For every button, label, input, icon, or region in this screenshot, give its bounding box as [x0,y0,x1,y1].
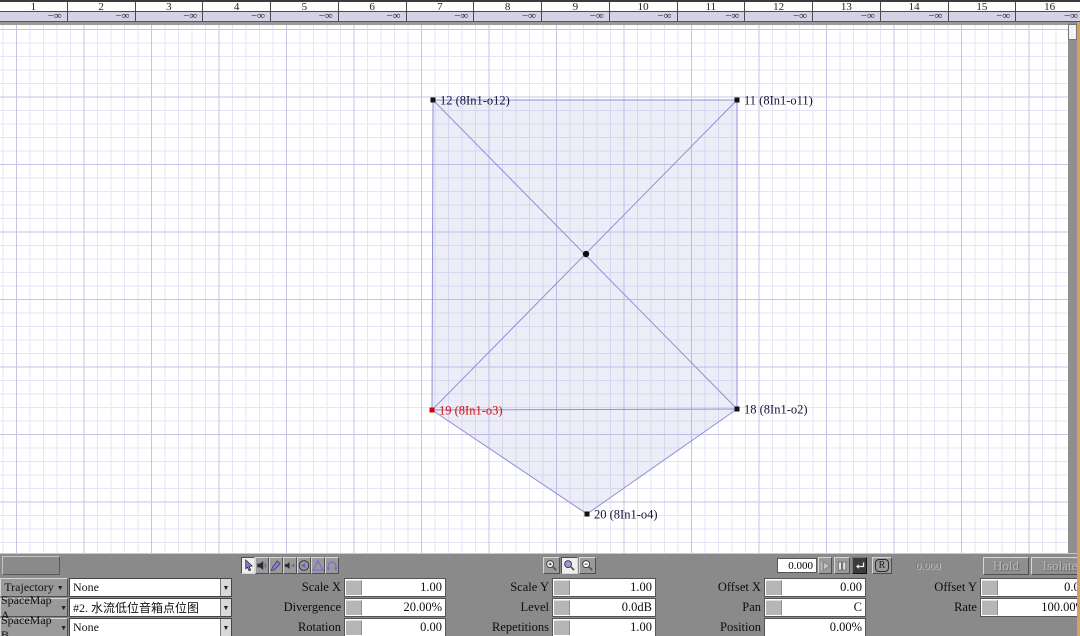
cursor-tool-button[interactable] [241,557,255,574]
param-scale-x-label: Scale X [232,578,344,597]
status-box [2,556,60,575]
spacemap-a-value: #2. 水流低位音箱点位图 [70,599,220,616]
channel-cell: 7−∞ [407,2,475,21]
speaker-solo-tool-button[interactable] [297,557,311,574]
slider-handle[interactable] [346,580,362,595]
zoom-fit-icon [563,559,576,572]
trajectory-select[interactable]: None▼ [69,578,232,597]
slider-handle[interactable] [346,600,362,615]
control-panel: Trajectory▼None▼SpaceMap A▼#2. 水流低位音箱点位图… [0,577,1080,636]
chevron-down-icon: ▼ [60,624,67,632]
slider-handle[interactable] [766,580,782,595]
param-scale-y-field[interactable]: 1.00 [552,578,656,597]
channel-meter-bar: 1−∞2−∞3−∞4−∞5−∞6−∞7−∞8−∞9−∞10−∞11−∞12−∞1… [0,0,1080,22]
channel-cell: 5−∞ [271,2,339,21]
param-offset-y-field[interactable]: 0.00 [980,578,1080,597]
speaker-pan-tool-icon [284,559,296,572]
spacemap-b-menu-button[interactable]: SpaceMap B▼ [0,618,68,636]
channel-cell: 15−∞ [949,2,1017,21]
spacemap-b-label: SpaceMap B [1,613,57,636]
slider-handle[interactable] [982,580,998,595]
param-offset-x-field[interactable]: 0.00 [764,578,866,597]
param-position-label: Position [656,618,764,636]
slider-handle[interactable] [346,620,362,635]
trajectory-value: None [70,580,220,595]
speaker-tool-icon [256,559,268,572]
param-offset-x-value: 0.00 [840,580,862,594]
param-divergence-field[interactable]: 20.00% [344,598,446,617]
speaker-solo-tool-icon [298,559,310,572]
param-divergence-label: Divergence [232,598,344,617]
param-pan-value: C [854,600,862,614]
param-pan-field[interactable]: C [764,598,866,617]
channel-level: −∞ [949,12,1016,21]
selector-row: SpaceMap B▼None▼ [0,618,232,636]
param-scale-x-value: 1.00 [420,580,442,594]
param-position-value: 0.00% [830,620,862,634]
slider-handle[interactable] [766,600,782,615]
channel-cell: 16−∞ [1016,2,1080,21]
zoom-out-button[interactable] [579,557,596,574]
channel-cell: 11−∞ [678,2,746,21]
draw-trajectory-tool-icon [270,559,282,572]
param-repetitions-label: Repetitions [446,618,552,636]
channel-cell: 9−∞ [542,2,610,21]
loop-return-button[interactable] [852,557,867,574]
zoom-in-icon [545,559,558,572]
headphones-tool-icon [326,559,338,572]
spacemap-a-select[interactable]: #2. 水流低位音箱点位图▼ [69,598,232,617]
slider-handle[interactable] [554,580,570,595]
param-pan-label: Pan [656,598,764,617]
param-rate-value: 100.00% [1041,600,1080,614]
channel-level: −∞ [813,12,880,21]
channel-level: −∞ [407,12,474,21]
param-repetitions-field[interactable]: 1.00 [552,618,656,636]
headphones-tool-button[interactable] [325,557,339,574]
param-scale-y-value: 1.00 [630,580,652,594]
param-rate-label: Rate [866,598,980,617]
param-offset-x-label: Offset X [656,578,764,597]
channel-level: −∞ [0,12,67,21]
channel-cell: 14−∞ [881,2,949,21]
channel-level: −∞ [68,12,135,21]
channel-level: −∞ [542,12,609,21]
channel-level: −∞ [203,12,270,21]
dropdown-arrow-icon[interactable]: ▼ [220,579,231,596]
vertical-scrollbar[interactable] [1068,22,1077,553]
dropdown-arrow-icon[interactable]: ▼ [220,619,231,636]
speaker-tool-button[interactable] [255,557,269,574]
param-rotation-field[interactable]: 0.00 [344,618,446,636]
param-scale-y-label: Scale Y [446,578,552,597]
cursor-tool-icon [243,559,254,572]
chevron-down-icon: ▼ [60,604,67,612]
param-level-field[interactable]: 0.0dB [552,598,656,617]
channel-cell: 4−∞ [203,2,271,21]
channel-cell: 13−∞ [813,2,881,21]
spacemap-b-select[interactable]: None▼ [69,618,232,636]
slider-handle[interactable] [554,600,570,615]
dropdown-arrow-icon[interactable]: ▼ [220,599,231,616]
param-offset-y-label: Offset Y [866,578,980,597]
slider-handle[interactable] [554,620,570,635]
zoom-in-button[interactable] [543,557,560,574]
param-scale-x-field[interactable]: 1.00 [344,578,446,597]
channel-cell: 8−∞ [474,2,542,21]
channel-level: −∞ [136,12,203,21]
channel-level: −∞ [339,12,406,21]
channel-cell: 3−∞ [136,2,204,21]
speaker-pan-tool-button[interactable] [283,557,297,574]
time-input[interactable] [777,558,817,573]
channel-level: −∞ [745,12,812,21]
channel-cell: 1−∞ [0,2,68,21]
slider-handle[interactable] [982,600,998,615]
channel-cell: 6−∞ [339,2,407,21]
empty-cell [980,618,1080,636]
scrollbar-thumb[interactable] [1068,24,1077,40]
step-play-button[interactable] [818,557,832,574]
channel-level: −∞ [610,12,677,21]
channel-level: −∞ [271,12,338,21]
spacemap-b-value: None [70,620,220,635]
param-rate-field[interactable]: 100.00% [980,598,1080,617]
record-button[interactable]: R [872,557,892,574]
channel-level: −∞ [474,12,541,21]
draw-trajectory-tool-button[interactable] [269,557,283,574]
param-rotation-value: 0.00 [420,620,442,634]
empty-cell [866,618,980,636]
zoom-fit-button[interactable] [561,557,578,574]
param-position-field[interactable]: 0.00% [764,618,866,636]
chevron-down-icon: ▼ [57,584,64,592]
triangle-tool-icon [312,559,324,572]
triangle-tool-button[interactable] [311,557,325,574]
channel-cell: 2−∞ [68,2,136,21]
transport-bar: R 0.000 Hold Isolate [0,553,1080,577]
channel-level: −∞ [1016,12,1080,21]
isolate-button[interactable]: Isolate [1031,557,1080,575]
param-rotation-label: Rotation [232,618,344,636]
time-readout: 0.000 [905,560,951,572]
pause-button[interactable] [834,557,850,574]
channel-level: −∞ [678,12,745,21]
channel-level: −∞ [881,12,948,21]
param-level-label: Level [446,598,552,617]
channel-cell: 12−∞ [745,2,813,21]
param-level-value: 0.0dB [622,600,652,614]
zoom-out-icon [581,559,594,572]
param-repetitions-value: 1.00 [630,620,652,634]
hold-button[interactable]: Hold [983,557,1029,575]
param-divergence-value: 20.00% [403,600,442,614]
spacemap-canvas[interactable] [0,22,1080,553]
channel-cell: 10−∞ [610,2,678,21]
